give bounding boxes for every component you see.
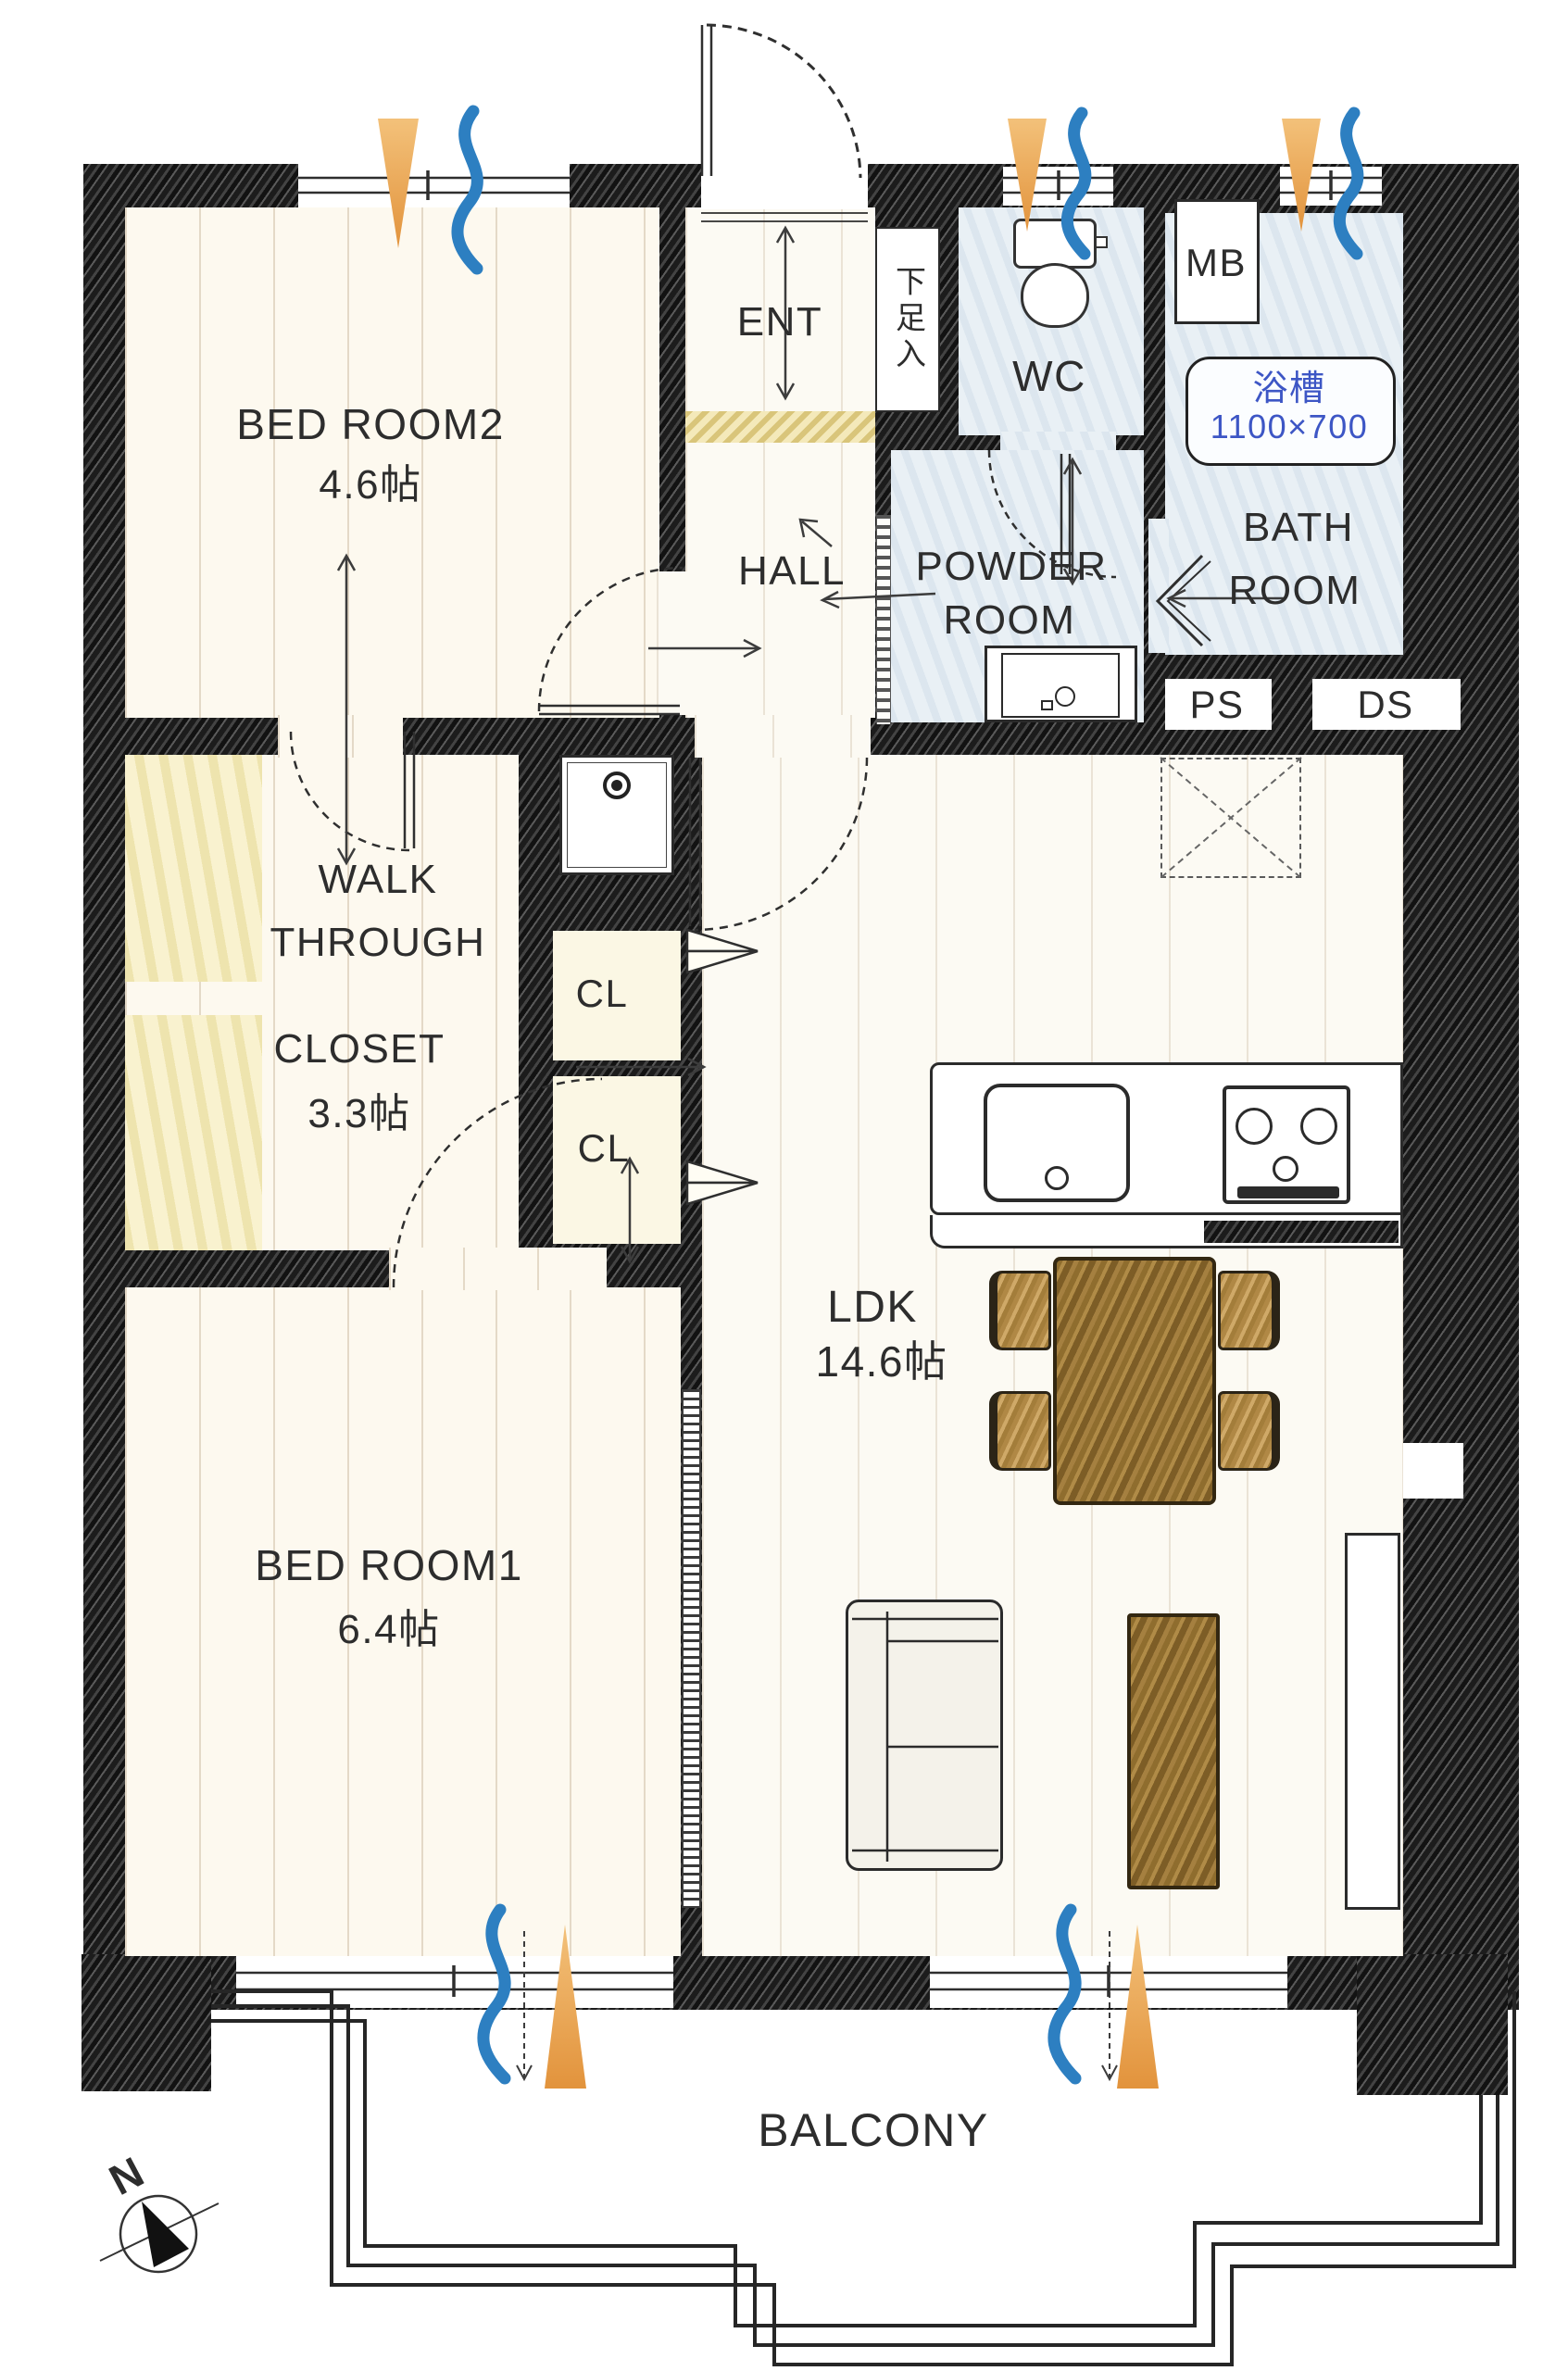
bedroom1-balcony-window: [236, 1956, 673, 2008]
vent-arrow-heads: [517, 2065, 1117, 2079]
bath-window: [1280, 167, 1382, 206]
stove-burner-left: [1236, 1108, 1273, 1145]
vanity-faucet: [1041, 700, 1053, 710]
ldk-wall-notch: [1403, 1443, 1463, 1499]
hall-powder-sliding-door: [876, 515, 891, 724]
compass-circle: [120, 2196, 196, 2272]
compass-needle-icon: [142, 2202, 189, 2267]
bath-door-opening: [1148, 519, 1169, 653]
compass: [100, 2196, 219, 2272]
balcony-right-wall-block: [1357, 1954, 1508, 2095]
label-hall: HALL: [738, 551, 846, 592]
toilet-tank: [1013, 219, 1097, 269]
walkthrough-bedroom1-opening: [389, 1248, 607, 1290]
toilet-bowl: [1021, 263, 1089, 328]
dining-chair-bottom-right: [1218, 1391, 1280, 1471]
ldk-balcony-window: [930, 1956, 1287, 2008]
washer-drain-core: [611, 780, 622, 791]
vanity-inner: [1001, 653, 1120, 718]
label-bathtub-size: 1100×700: [1210, 410, 1369, 444]
label-wc: WC: [1012, 355, 1086, 397]
label-cl1: CL: [576, 974, 629, 1013]
dining-chair-top-right: [1218, 1271, 1280, 1350]
kitchen-counter-shadow: [1204, 1221, 1399, 1243]
tv-board: [1345, 1533, 1400, 1910]
bedroom2-walkthrough-opening: [278, 715, 403, 758]
walkthrough-hanger-upper: [125, 755, 262, 982]
refrigerator-space: [1160, 758, 1301, 878]
ent-step: [685, 411, 875, 443]
dining-table: [1053, 1257, 1216, 1505]
label-compass-north: N: [103, 2150, 151, 2202]
label-cl2: CL: [578, 1129, 631, 1168]
entrance-door: [702, 25, 860, 178]
dining-chair-bottom-left: [989, 1391, 1051, 1471]
label-bathtub: 浴槽: [1252, 371, 1325, 407]
label-ds: DS: [1357, 685, 1413, 724]
label-ps: PS: [1189, 685, 1244, 724]
wc-window: [1003, 167, 1113, 206]
entrance-door-opening: [701, 164, 868, 209]
wc-door-opening: [1000, 432, 1116, 452]
label-walkthrough-3: CLOSET: [273, 1029, 445, 1070]
label-ldk-size: 14.6帖: [815, 1340, 947, 1383]
coffee-table: [1127, 1613, 1220, 1889]
compass-axis: [100, 2203, 219, 2261]
stove-front-bar: [1237, 1186, 1339, 1198]
bedroom1-ldk-sliding-partition: [682, 1389, 701, 1908]
label-bath-1: BATH: [1243, 508, 1354, 548]
sofa: [846, 1599, 1003, 1871]
label-bedroom1-name: BED ROOM1: [255, 1544, 523, 1587]
stove-burner-small: [1273, 1156, 1298, 1182]
label-powder-1: POWDER: [916, 546, 1108, 587]
label-bedroom2-size: 4.6帖: [319, 465, 421, 506]
label-walkthrough-1: WALK: [318, 859, 437, 900]
toilet-handle: [1095, 236, 1108, 248]
kitchen-faucet: [1045, 1166, 1069, 1190]
label-balcony: BALCONY: [758, 2107, 988, 2153]
balcony-left-wall-block: [82, 1954, 211, 2091]
floor-plan: BED ROOM2 4.6帖 ENT 下足入 WC MB 浴槽 1100×700…: [0, 0, 1568, 2371]
vanity-sink: [1055, 686, 1075, 707]
label-ldk-name: LDK: [827, 1286, 918, 1330]
balcony-railing: [211, 1991, 1514, 2365]
hall-ldk-opening: [695, 715, 871, 758]
label-bath-2: ROOM: [1229, 571, 1361, 611]
dining-chair-top-left: [989, 1271, 1051, 1350]
bedroom2-door-opening: [657, 571, 688, 715]
bedroom2-window: [298, 164, 570, 207]
label-walkthrough-2: THROUGH: [270, 922, 486, 963]
label-powder-2: ROOM: [944, 600, 1076, 641]
stove-burner-right: [1300, 1108, 1337, 1145]
label-mb: MB: [1185, 244, 1247, 282]
walkthrough-hanger-lower: [125, 1015, 262, 1250]
label-bedroom2-name: BED ROOM2: [236, 403, 505, 445]
label-bedroom1-size: 6.4帖: [337, 1610, 440, 1650]
label-shoe-cabinet: 下足入: [894, 266, 924, 374]
label-walkthrough-size: 3.3帖: [307, 1094, 410, 1135]
label-ent: ENT: [737, 302, 823, 343]
